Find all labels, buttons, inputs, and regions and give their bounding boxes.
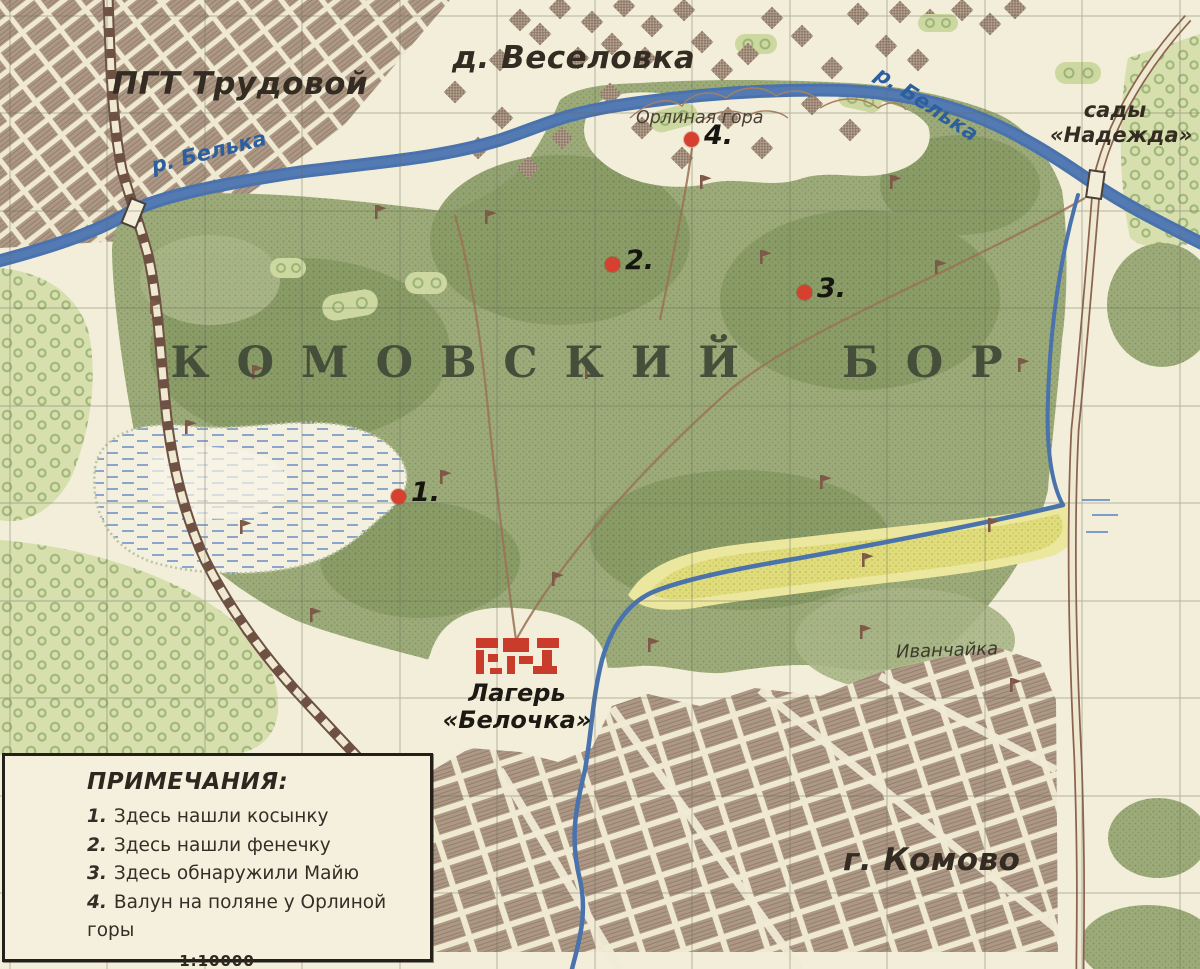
label-orlinaya-gora: Орлиная гора	[636, 108, 763, 128]
note-number: 3.	[87, 863, 107, 884]
poi-number: 4.	[704, 120, 733, 151]
label-town-trudovoy: ПГТ Трудовой	[112, 66, 368, 102]
poi-dot-icon	[605, 257, 620, 272]
gardens-line1: сады	[1050, 98, 1180, 123]
camp-line1: Лагерь	[427, 680, 607, 707]
note-text: Здесь нашли фенечку	[114, 835, 331, 856]
note-number: 1.	[87, 806, 107, 827]
legend-panel: ПРИМЕЧАНИЯ: 1.Здесь нашли косынку 2.Здес…	[2, 753, 433, 962]
camp-line2: «Белочка»	[427, 707, 607, 734]
label-village-veselovka: д. Веселовка	[452, 40, 695, 76]
label-city-komovo: г. Комово	[843, 842, 1020, 878]
legend-note: 2.Здесь нашли фенечку	[87, 832, 430, 861]
legend-note: 3.Здесь обнаружили Майю	[87, 860, 430, 889]
note-text: Здесь обнаружили Майю	[114, 863, 359, 884]
legend-note: 4.Валун на поляне у Орлиной горы	[87, 889, 430, 946]
label-gardens-nadezhda: сады «Надежда»	[1050, 98, 1180, 148]
camp-belochka-icon	[476, 638, 560, 684]
gardens-line2: «Надежда»	[1050, 123, 1180, 148]
poi-dot-icon	[684, 132, 699, 147]
scale-ratio: 1:10000	[77, 952, 357, 969]
note-number: 2.	[87, 835, 107, 856]
map-page: ПГТ Трудовой д. Веселовка сады «Надежда»…	[0, 0, 1200, 969]
poi-dot-icon	[391, 489, 406, 504]
poi-number: 1.	[411, 477, 440, 508]
label-camp-belochka: Лагерь «Белочка»	[427, 680, 607, 734]
legend-note: 1.Здесь нашли косынку	[87, 803, 430, 832]
poi-dot-icon	[797, 285, 812, 300]
note-text: Валун на поляне у Орлиной горы	[87, 892, 386, 942]
scale-block: 1:10000 1 см на плане соответствует 100 …	[77, 952, 357, 969]
poi-number: 2.	[625, 245, 654, 276]
note-text: Здесь нашли косынку	[114, 806, 329, 827]
note-number: 4.	[87, 892, 107, 913]
region-title: КОМОВСКИЙ БОР	[150, 338, 1050, 388]
poi-number: 3.	[817, 273, 846, 304]
legend-heading: ПРИМЕЧАНИЯ:	[87, 769, 430, 795]
label-ivanchayka: Иванчайка	[896, 638, 999, 663]
